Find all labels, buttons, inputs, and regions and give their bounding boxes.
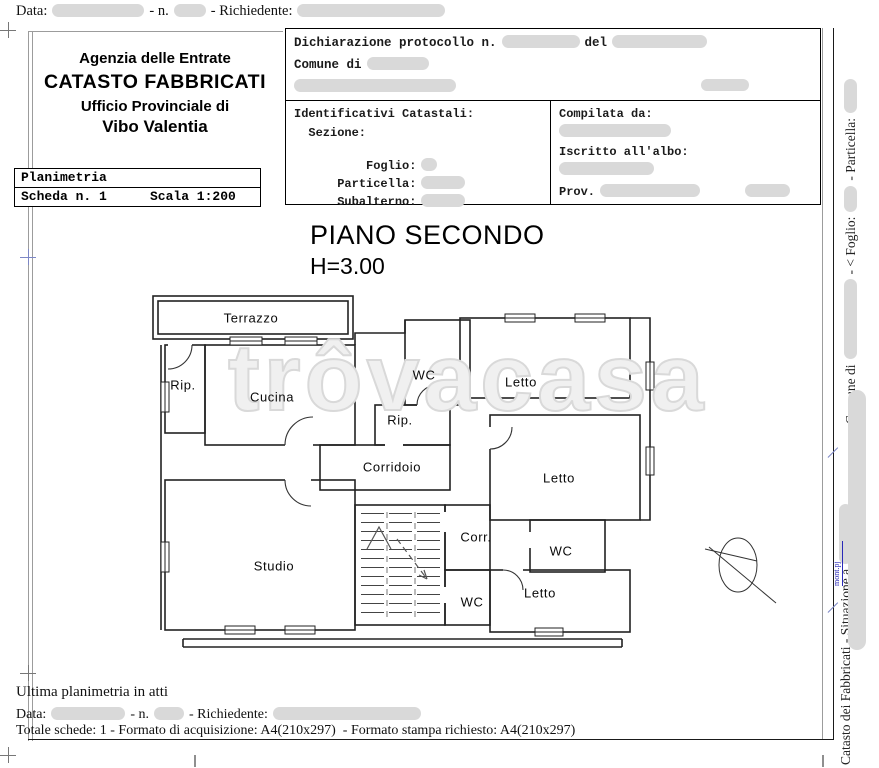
floor-title: PIANO SECONDO	[310, 220, 545, 251]
compass-symbol	[705, 538, 776, 603]
margin-blue-note: mont.pj	[832, 541, 843, 586]
identificativi-box: Identificativi Catastali: Sezione: Fogli…	[285, 100, 552, 205]
room-label-rip-left: Rip.	[170, 378, 196, 393]
frame-left-inner	[32, 31, 33, 741]
redaction-bar	[612, 35, 707, 48]
scheda-label: Scheda n. 1	[21, 189, 107, 204]
redaction-bar	[154, 707, 184, 720]
room-label-corridoio: Corridoio	[363, 460, 421, 475]
agency-line4: Vibo Valentia	[30, 117, 280, 137]
registration-mark	[0, 22, 16, 38]
redaction-bar	[421, 194, 465, 207]
room-label-letto-right: Letto	[543, 471, 575, 486]
scala-label: Scala 1:200	[150, 189, 236, 204]
redaction-bar	[701, 79, 749, 91]
room-label-letto-bottom: Letto	[524, 586, 556, 601]
number-label: - n.	[130, 707, 149, 722]
registration-mark	[194, 755, 196, 767]
room-label-wc-top: WC	[413, 368, 436, 383]
richiedente-label: - Richiedente:	[211, 3, 293, 19]
margin-right-upper-text: - Comune di- < Foglio:- Particella:	[843, 22, 863, 432]
prov-label: Prov.	[559, 185, 595, 199]
redaction-bar	[174, 4, 206, 17]
data-label: Data:	[16, 707, 46, 722]
redaction-bar	[502, 35, 580, 48]
cadastral-floorplan-document: Data:- n.- Richiedente: Agenzia delle En…	[0, 0, 879, 768]
subalterno-label: Subalterno:	[337, 195, 416, 209]
agency-line1: Agenzia delle Entrate	[30, 50, 280, 67]
registration-mark	[822, 755, 824, 767]
floor-plan-drawing	[135, 287, 835, 687]
redaction-bar	[294, 79, 456, 92]
redaction-bar	[297, 4, 445, 17]
ultima-planimetria-line: Ultima planimetria in atti	[16, 684, 168, 701]
redaction-bar	[844, 186, 857, 212]
protocollo-label: Dichiarazione protocollo n.	[294, 36, 497, 50]
door-gaps	[168, 343, 532, 603]
agency-line3: Ufficio Provinciale di	[30, 98, 280, 115]
room-label-wc-right: WC	[550, 544, 573, 559]
room-label-cucina: Cucina	[250, 390, 294, 405]
data-label: Data:	[16, 3, 47, 19]
floor-height: H=3.00	[310, 253, 385, 280]
margin-particella-label: - Particella:	[843, 118, 858, 181]
iscritto-label: Iscritto all'albo:	[559, 145, 689, 159]
redaction-bar	[52, 4, 144, 17]
redaction-bar	[51, 707, 125, 720]
room-label-terrazzo: Terrazzo	[224, 311, 279, 326]
comune-label: Comune di	[294, 58, 362, 72]
staircase	[360, 509, 442, 621]
number-label: - n.	[149, 3, 168, 19]
frame-top-line	[28, 31, 283, 32]
registration-mark	[0, 747, 16, 763]
planimetria-title: Planimetria	[15, 169, 260, 188]
redaction-bar	[848, 390, 866, 650]
redaction-bar	[367, 57, 429, 70]
redaction-bar	[745, 184, 790, 197]
margin-foglio-label: - < Foglio:	[843, 217, 858, 275]
registration-mark	[20, 665, 36, 681]
redaction-bar	[844, 280, 857, 360]
room-label-rip-center: Rip.	[387, 413, 413, 428]
compilata-title: Compilata da:	[559, 107, 653, 121]
room-label-corr: Corr.	[460, 530, 491, 545]
identificativi-title: Identificativi Catastali:	[294, 107, 474, 121]
redaction-bar	[559, 124, 671, 137]
compilata-box: Compilata da: Iscritto all'albo: Prov.	[550, 100, 821, 205]
del-label: del	[585, 36, 608, 50]
planimetria-table: Planimetria Scheda n. 1 Scala 1:200	[14, 168, 261, 207]
registration-mark	[20, 249, 36, 265]
footer-data-line: Data:- n.- Richiedente:	[16, 707, 426, 723]
totale-schede-line: Totale schede: 1 - Formato di acquisizio…	[16, 723, 575, 739]
redaction-bar	[273, 707, 421, 720]
room-label-wc-bottom: WC	[461, 595, 484, 610]
agency-line2: CATASTO FABBRICATI	[30, 71, 280, 94]
room-label-studio: Studio	[254, 559, 294, 574]
agency-header: Agenzia delle Entrate CATASTO FABBRICATI…	[30, 50, 280, 137]
dichiarazione-box: Dichiarazione protocollo n.del Comune di	[285, 28, 821, 101]
redaction-bar	[559, 162, 654, 175]
frame-left-outer	[28, 31, 29, 741]
sezione-label: Sezione:	[294, 126, 366, 140]
frame-bottom-line	[28, 739, 834, 740]
top-data-line: Data:- n.- Richiedente:	[16, 3, 450, 20]
richiedente-label: - Richiedente:	[189, 707, 268, 722]
room-label-letto-top-right: Letto	[505, 375, 537, 390]
redaction-bar	[600, 184, 700, 197]
redaction-bar	[844, 79, 857, 113]
